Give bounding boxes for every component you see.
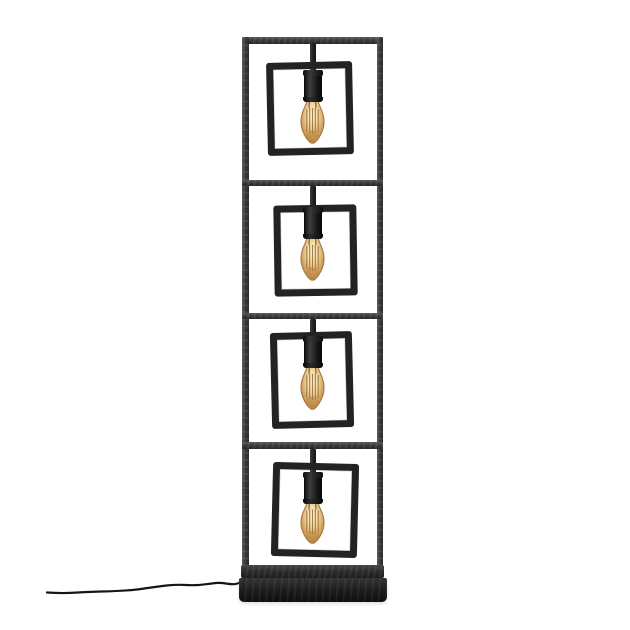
edison-bulb-1: [297, 97, 328, 146]
shelf-divider-3: [242, 442, 383, 449]
bulb-socket-4: [304, 474, 322, 502]
lamp-base-plinth: [239, 578, 387, 602]
lamp-base-plate: [241, 565, 384, 578]
edison-bulb-glass: [297, 234, 328, 283]
edison-bulb-glass: [297, 363, 328, 412]
bulb-socket-1: [304, 72, 322, 100]
edison-bulb-2: [297, 234, 328, 283]
edison-bulb-4: [297, 499, 328, 546]
product-image-stage: [0, 0, 630, 630]
edison-bulb-glass: [297, 97, 328, 146]
bulb-socket-2: [304, 209, 322, 237]
bulb-socket-3: [304, 338, 322, 366]
edison-bulb-3: [297, 363, 328, 412]
edison-bulb-glass: [297, 499, 328, 546]
outer-frame-left-bar: [242, 37, 249, 566]
outer-frame-right-bar: [377, 37, 384, 566]
power-cord-path: [47, 580, 243, 593]
